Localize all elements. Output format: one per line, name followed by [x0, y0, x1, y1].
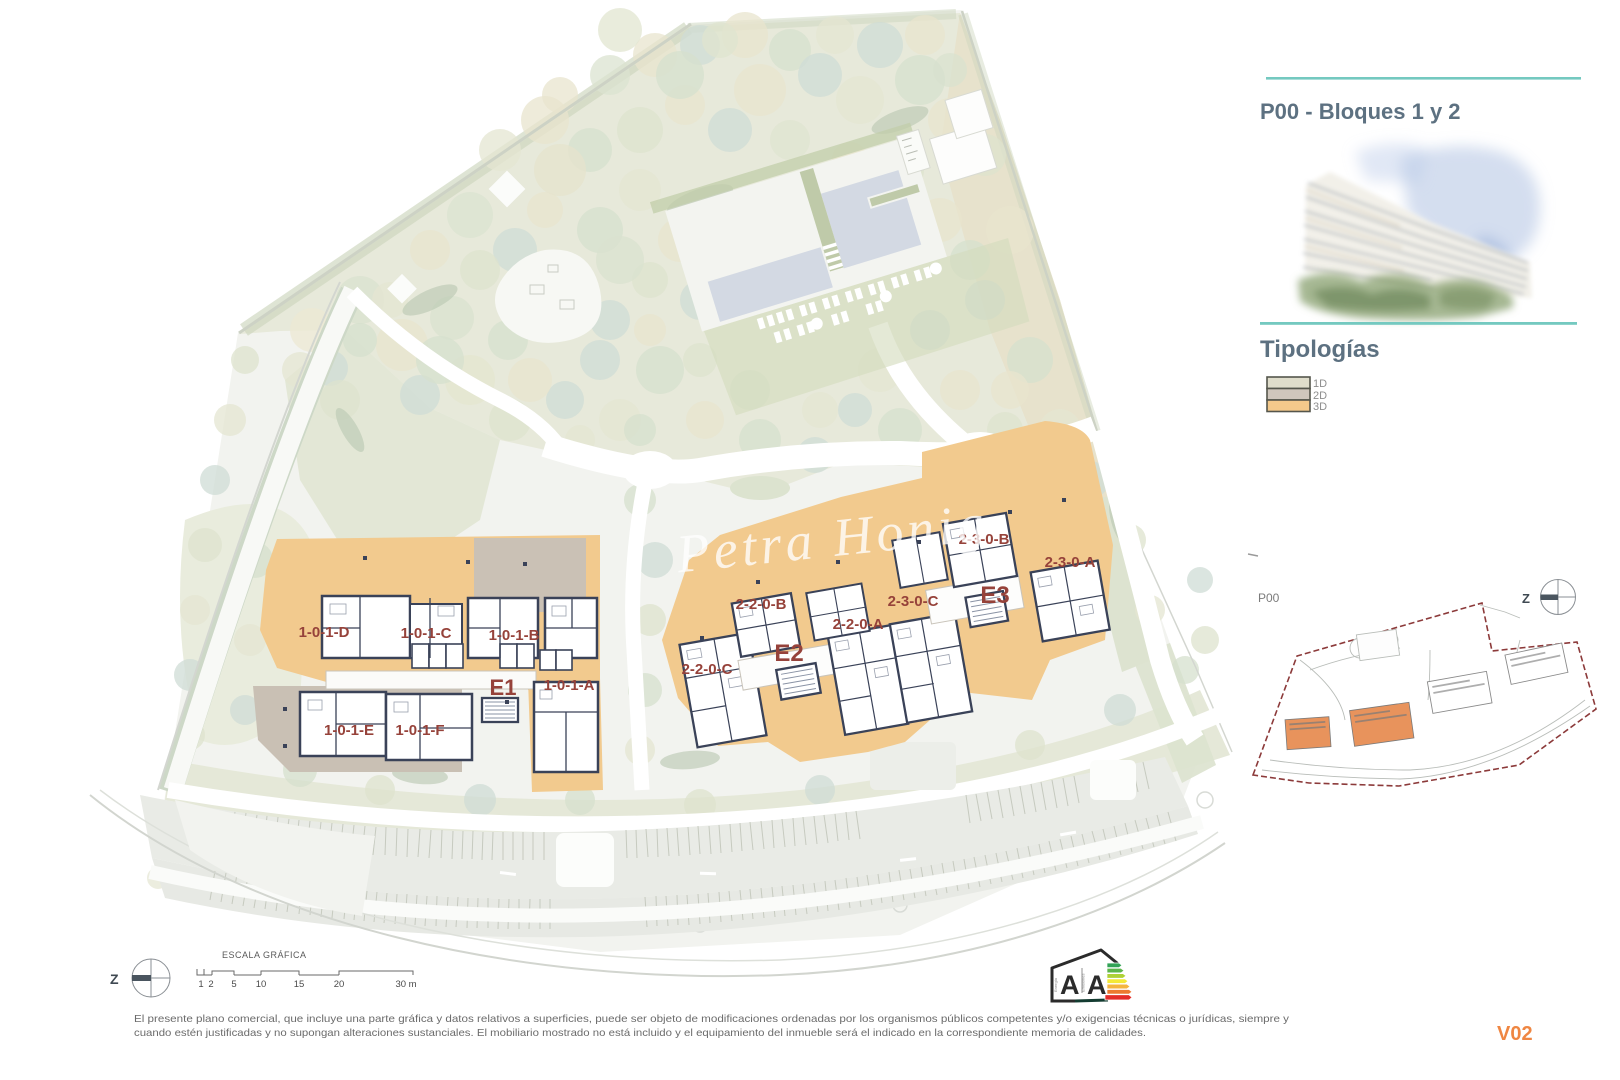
svg-text:1-0-1-B: 1-0-1-B: [489, 627, 540, 644]
svg-text:2-2-0-A: 2-2-0-A: [833, 616, 884, 633]
svg-text:2-3-0-A: 2-3-0-A: [1045, 554, 1096, 571]
svg-text:V02: V02: [1497, 1023, 1533, 1045]
svg-text:A: A: [1087, 970, 1107, 1000]
svg-text:E2: E2: [774, 640, 803, 667]
svg-text:10: 10: [256, 979, 267, 990]
svg-text:Energía: Energía: [1053, 977, 1058, 992]
svg-text:P00: P00: [1258, 591, 1280, 605]
svg-text:ESCALA GRÁFICA: ESCALA GRÁFICA: [222, 950, 307, 960]
svg-text:El presente plano comercial, q: El presente plano comercial, que incluye…: [134, 1014, 1290, 1025]
svg-text:15: 15: [294, 979, 305, 990]
svg-text:1-0-1-F: 1-0-1-F: [395, 722, 444, 739]
svg-text:1-0-1-D: 1-0-1-D: [299, 624, 350, 641]
svg-text:Z: Z: [110, 971, 119, 987]
svg-text:1-0-1-C: 1-0-1-C: [401, 625, 452, 642]
svg-text:E1: E1: [490, 675, 517, 700]
svg-text:20: 20: [334, 979, 345, 990]
svg-text:Emisiones: Emisiones: [1081, 974, 1086, 992]
svg-text:P00 - Bloques 1 y 2: P00 - Bloques 1 y 2: [1260, 99, 1461, 124]
svg-text:3D: 3D: [1313, 401, 1327, 413]
svg-text:A: A: [1060, 970, 1080, 1000]
svg-text:E3: E3: [980, 582, 1009, 609]
svg-text:1D: 1D: [1313, 378, 1327, 390]
svg-text:2-2-0-C: 2-2-0-C: [682, 661, 733, 678]
svg-text:1-0-1-E: 1-0-1-E: [324, 722, 374, 739]
svg-text:Z: Z: [1522, 591, 1530, 606]
svg-text:Tipologías: Tipologías: [1260, 336, 1380, 363]
svg-text:30 m: 30 m: [395, 979, 416, 990]
svg-text:5: 5: [231, 979, 236, 990]
svg-text:2-2-0-B: 2-2-0-B: [736, 596, 787, 613]
svg-text:1: 1: [198, 979, 203, 990]
svg-text:2: 2: [208, 979, 213, 990]
svg-text:1-0-1-A: 1-0-1-A: [544, 677, 595, 694]
svg-text:cuando estén justificadas y no: cuando estén justificadas y no supongan …: [134, 1028, 1146, 1039]
svg-text:2-3-0-C: 2-3-0-C: [888, 593, 939, 610]
